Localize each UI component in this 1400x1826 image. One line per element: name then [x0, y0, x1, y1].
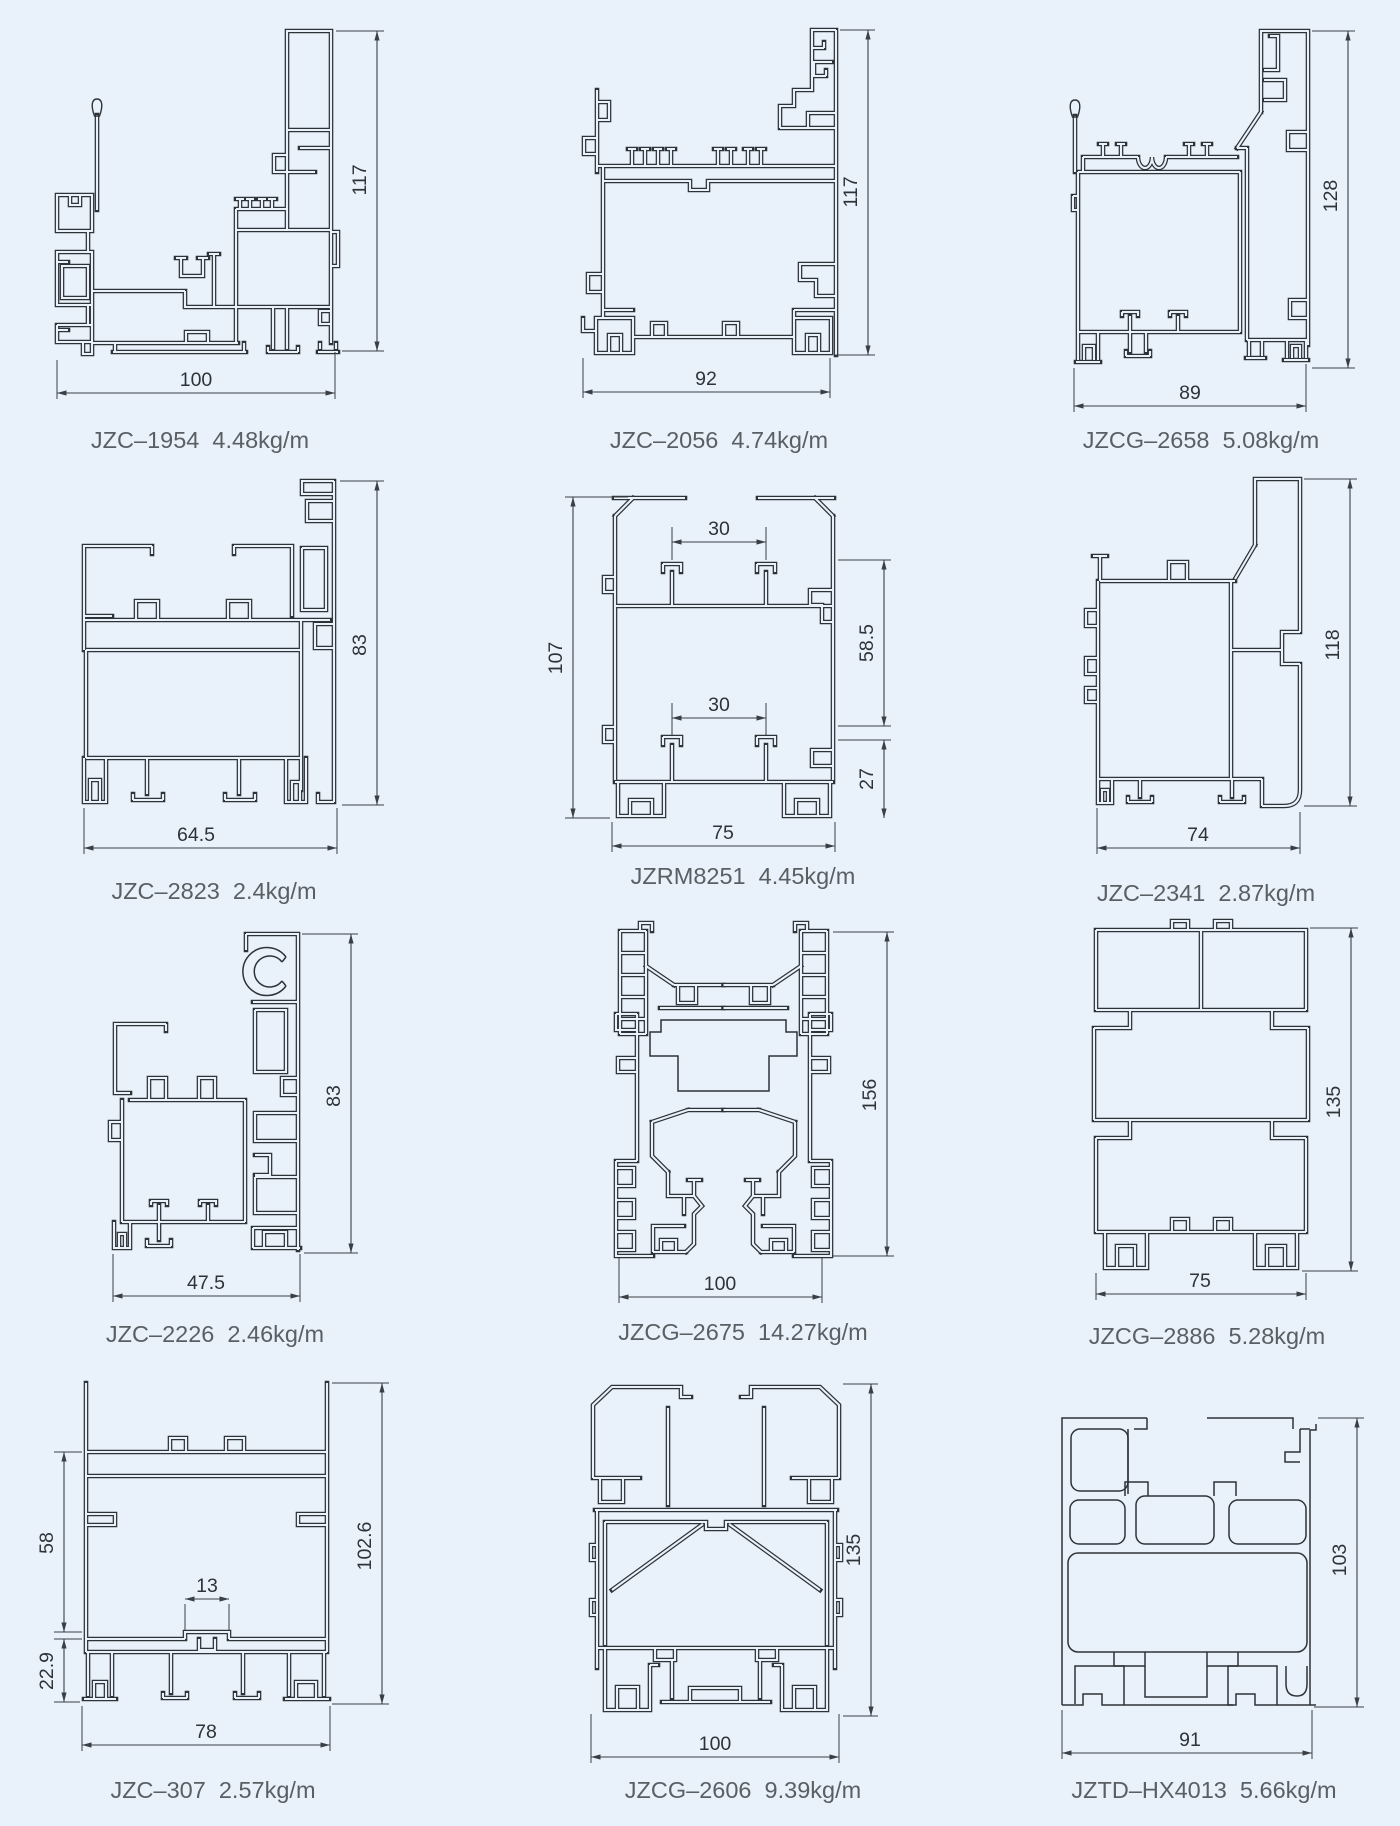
svg-text:92: 92: [695, 368, 717, 390]
svg-text:103: 103: [1329, 1544, 1351, 1577]
svg-text:117: 117: [840, 176, 862, 207]
svg-text:JZC–307 2.57kg/m: JZC–307 2.57kg/m: [110, 1777, 315, 1803]
svg-text:JZTD–HX4013 5.66kg/m: JZTD–HX4013 5.66kg/m: [1071, 1777, 1336, 1803]
svg-text:64.5: 64.5: [177, 824, 215, 846]
svg-text:117: 117: [349, 164, 371, 195]
svg-text:156: 156: [859, 1079, 881, 1112]
svg-text:JZCG–2675 14.27kg/m: JZCG–2675 14.27kg/m: [618, 1319, 868, 1345]
svg-text:JZCG–2658 5.08kg/m: JZCG–2658 5.08kg/m: [1083, 427, 1319, 453]
svg-text:107: 107: [545, 642, 567, 675]
svg-text:135: 135: [843, 1534, 865, 1567]
svg-text:JZCG–2886 5.28kg/m: JZCG–2886 5.28kg/m: [1089, 1323, 1325, 1349]
svg-text:83: 83: [349, 634, 371, 656]
svg-text:13: 13: [196, 1575, 218, 1597]
svg-text:100: 100: [699, 1733, 732, 1755]
svg-text:JZC–2226 2.46kg/m: JZC–2226 2.46kg/m: [106, 1321, 324, 1347]
svg-text:83: 83: [323, 1085, 345, 1107]
svg-text:22.9: 22.9: [36, 1652, 58, 1690]
svg-text:128: 128: [1320, 180, 1342, 213]
svg-text:91: 91: [1179, 1729, 1201, 1751]
svg-text:102.6: 102.6: [354, 1522, 376, 1571]
svg-text:30: 30: [708, 518, 730, 540]
svg-text:30: 30: [708, 694, 730, 716]
svg-text:JZC–2056 4.74kg/m: JZC–2056 4.74kg/m: [610, 427, 828, 453]
svg-text:135: 135: [1323, 1086, 1345, 1119]
svg-text:JZC–2823 2.4kg/m: JZC–2823 2.4kg/m: [111, 878, 316, 904]
svg-text:JZRM8251 4.45kg/m: JZRM8251 4.45kg/m: [631, 863, 856, 889]
svg-text:75: 75: [712, 822, 734, 844]
svg-text:75: 75: [1189, 1270, 1211, 1292]
svg-text:100: 100: [704, 1273, 737, 1295]
svg-text:JZC–2341 2.87kg/m: JZC–2341 2.87kg/m: [1097, 880, 1315, 906]
svg-text:JZCG–2606 9.39kg/m: JZCG–2606 9.39kg/m: [625, 1777, 861, 1803]
svg-text:27: 27: [856, 768, 878, 790]
svg-text:JZC–1954 4.48kg/m: JZC–1954 4.48kg/m: [91, 427, 309, 453]
svg-text:89: 89: [1179, 382, 1201, 404]
svg-text:58: 58: [36, 1532, 58, 1554]
svg-text:78: 78: [195, 1721, 217, 1743]
svg-text:118: 118: [1322, 629, 1344, 660]
svg-text:74: 74: [1187, 824, 1209, 846]
svg-text:47.5: 47.5: [187, 1272, 225, 1294]
svg-text:100: 100: [180, 369, 213, 391]
svg-text:58.5: 58.5: [856, 624, 878, 662]
